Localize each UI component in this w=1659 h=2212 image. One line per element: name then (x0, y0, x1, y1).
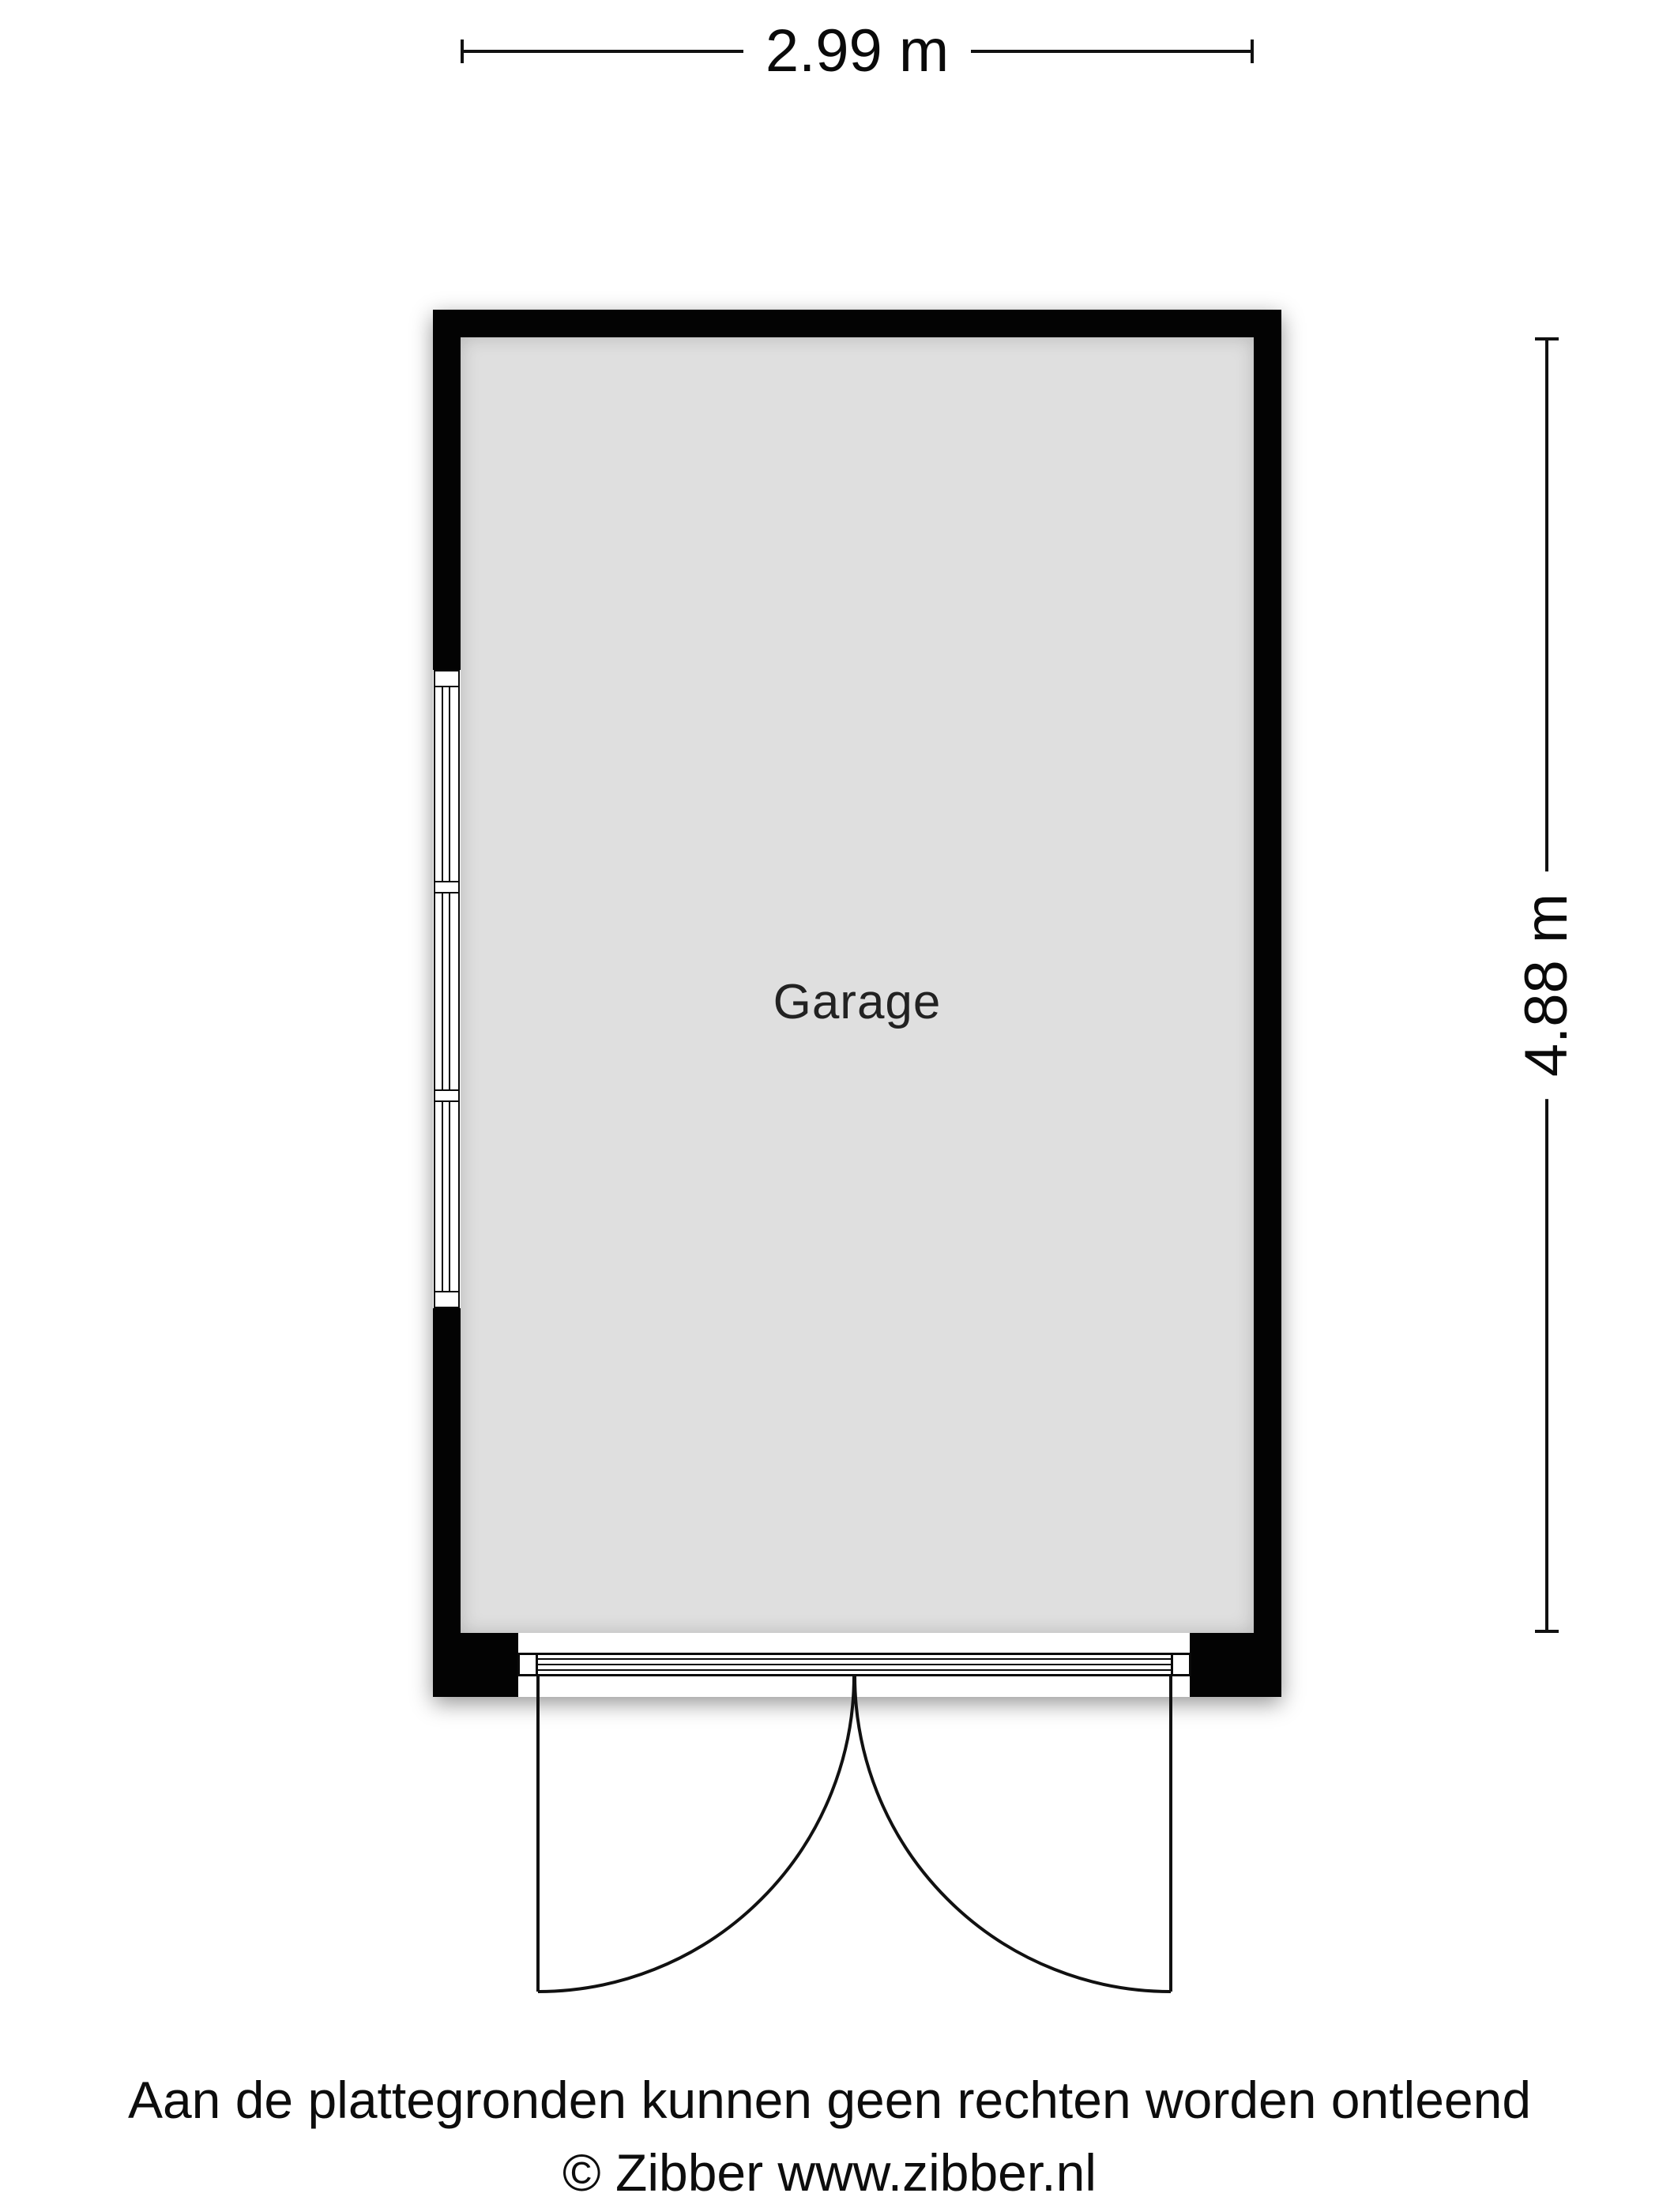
window-pane (435, 893, 458, 1089)
room-label: Garage (461, 978, 1254, 1027)
height-dimension-tick-top (1535, 337, 1559, 340)
window-glass-line (442, 893, 443, 1089)
wall-left-upper (433, 310, 461, 670)
window-end-cap-bottom (435, 1291, 458, 1307)
window-mullion (435, 881, 458, 893)
window-glass-line (449, 1102, 450, 1291)
door-arc-left (538, 1676, 854, 1992)
window-mullion (435, 1089, 458, 1102)
footer: Aan de plattegronden kunnen geen rechten… (0, 2063, 1659, 2209)
width-dimension-tick-left (461, 39, 464, 63)
footer-copyright: © Zibber www.zibber.nl (0, 2136, 1659, 2209)
wall-left-lower (433, 1308, 461, 1633)
window-glass-line (449, 893, 450, 1089)
window-glass-line (449, 687, 450, 881)
width-dimension-tick-right (1251, 39, 1254, 63)
window-end-cap-top (435, 671, 458, 687)
door-arc-right (855, 1676, 1171, 1992)
floor-plan-page: { "dimensions": { "width": "2.99 m", "he… (0, 0, 1659, 2212)
height-dimension-label: 4.88 m (1517, 871, 1577, 1099)
left-wall-window (434, 670, 460, 1308)
wall-top (433, 310, 1281, 337)
garage-building-outline: Garage (433, 310, 1281, 1697)
wall-right (1254, 310, 1281, 1633)
window-glass-line (442, 1102, 443, 1291)
wall-bottom-right-corner (1190, 1633, 1281, 1697)
window-glass-line (442, 687, 443, 881)
width-dimension-line: 2.99 m (461, 29, 1254, 73)
window-pane (435, 1102, 458, 1291)
height-dimension-tick-bottom (1535, 1630, 1559, 1633)
window-pane (435, 687, 458, 881)
garage-door-swing (506, 1659, 1201, 2022)
width-dimension-label: 2.99 m (743, 21, 971, 81)
height-dimension-line: 4.88 m (1525, 337, 1569, 1633)
footer-disclaimer: Aan de plattegronden kunnen geen rechten… (0, 2063, 1659, 2136)
